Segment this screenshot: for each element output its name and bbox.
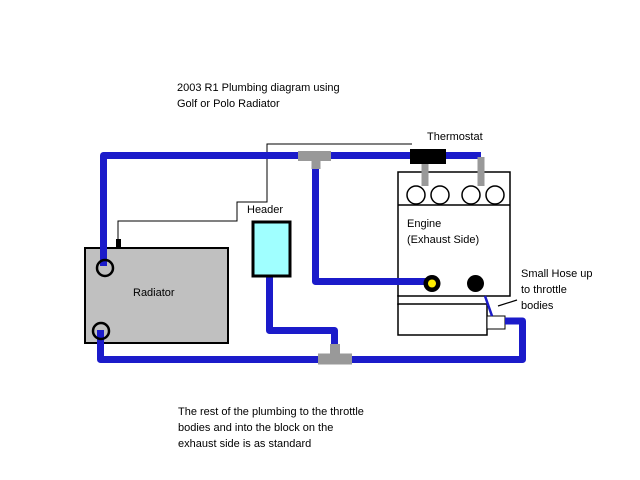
- thermostat-block: [410, 149, 446, 164]
- engine-port-black: [467, 275, 484, 292]
- engine-label-line1: Engine: [407, 216, 479, 232]
- diagram-title-line2: Golf or Polo Radiator: [177, 96, 340, 112]
- engine-outlet-stub: [487, 316, 505, 329]
- small-hose-note: Small Hose up to throttle bodies: [521, 266, 593, 314]
- bottom-hose-connector-stub: [330, 344, 340, 355]
- radiator-label: Radiator: [133, 285, 175, 301]
- top-hose-connector: [298, 151, 331, 161]
- bottom-note-line3: exhaust side is as standard: [178, 436, 364, 452]
- small-hose-note-line2: to throttle: [521, 282, 593, 298]
- bottom-note: The rest of the plumbing to the throttle…: [178, 404, 364, 452]
- cylinder-circle: [486, 186, 504, 204]
- small-hose-note-line3: bodies: [521, 298, 593, 314]
- diagram-title-line1: 2003 R1 Plumbing diagram using: [177, 80, 340, 96]
- header-tank: [253, 222, 290, 276]
- engine-lower-box: [398, 304, 487, 335]
- diagram-title: 2003 R1 Plumbing diagram using Golf or P…: [177, 80, 340, 112]
- cylinder-circle: [462, 186, 480, 204]
- small-hose-note-line1: Small Hose up: [521, 266, 593, 282]
- thermostat-label: Thermostat: [427, 129, 483, 145]
- engine-label-line2: (Exhaust Side): [407, 232, 479, 248]
- engine-inlet-stub-right: [478, 157, 485, 186]
- bottom-note-line2: bodies and into the block on the: [178, 420, 364, 436]
- engine-port-yellow-center: [428, 280, 436, 288]
- engine-inlet-stub-left: [422, 163, 429, 186]
- engine-label: Engine (Exhaust Side): [407, 216, 479, 248]
- leader-line: [498, 300, 517, 306]
- hose-header-drain: [270, 274, 335, 355]
- header-label: Header: [247, 202, 283, 218]
- bottom-hose-connector: [318, 354, 352, 365]
- bottom-note-line1: The rest of the plumbing to the throttle: [178, 404, 364, 420]
- cylinder-circle: [407, 186, 425, 204]
- top-hose-connector-stub: [312, 160, 321, 169]
- cylinder-circle: [431, 186, 449, 204]
- plumbing-diagram-canvas: 2003 R1 Plumbing diagram using Golf or P…: [0, 0, 640, 480]
